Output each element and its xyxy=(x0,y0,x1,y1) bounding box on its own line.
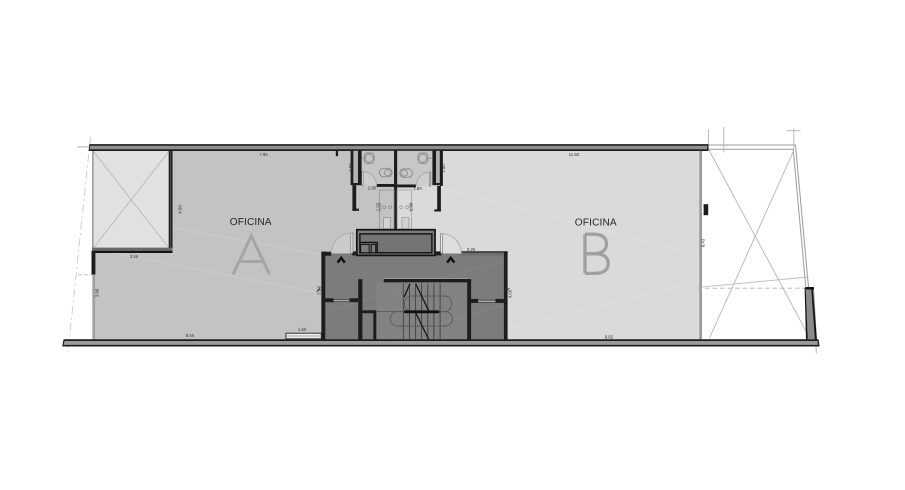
svg-text:1.80: 1.80 xyxy=(413,186,422,191)
svg-text:3.55: 3.55 xyxy=(130,254,139,259)
svg-text:1.93: 1.93 xyxy=(376,202,381,211)
svg-text:OFICINA: OFICINA xyxy=(575,217,617,228)
svg-text:4.58: 4.58 xyxy=(177,205,182,214)
svg-text:OFICINA: OFICINA xyxy=(230,217,272,228)
svg-text:8.43: 8.43 xyxy=(700,238,705,247)
svg-text:1.80: 1.80 xyxy=(368,186,377,191)
svg-text:1.60: 1.60 xyxy=(298,327,307,332)
svg-text:1.50: 1.50 xyxy=(348,163,353,172)
svg-text:8.82: 8.82 xyxy=(605,335,614,340)
svg-text:8.55: 8.55 xyxy=(186,333,195,338)
svg-text:1.93: 1.93 xyxy=(409,202,414,211)
svg-text:1.50: 1.50 xyxy=(441,164,446,173)
svg-text:4.00: 4.00 xyxy=(508,289,513,298)
svg-text:3.25: 3.25 xyxy=(467,247,476,252)
svg-text:7.95: 7.95 xyxy=(259,152,268,157)
svg-text:11.82: 11.82 xyxy=(569,152,580,157)
svg-text:3.88: 3.88 xyxy=(95,288,100,297)
